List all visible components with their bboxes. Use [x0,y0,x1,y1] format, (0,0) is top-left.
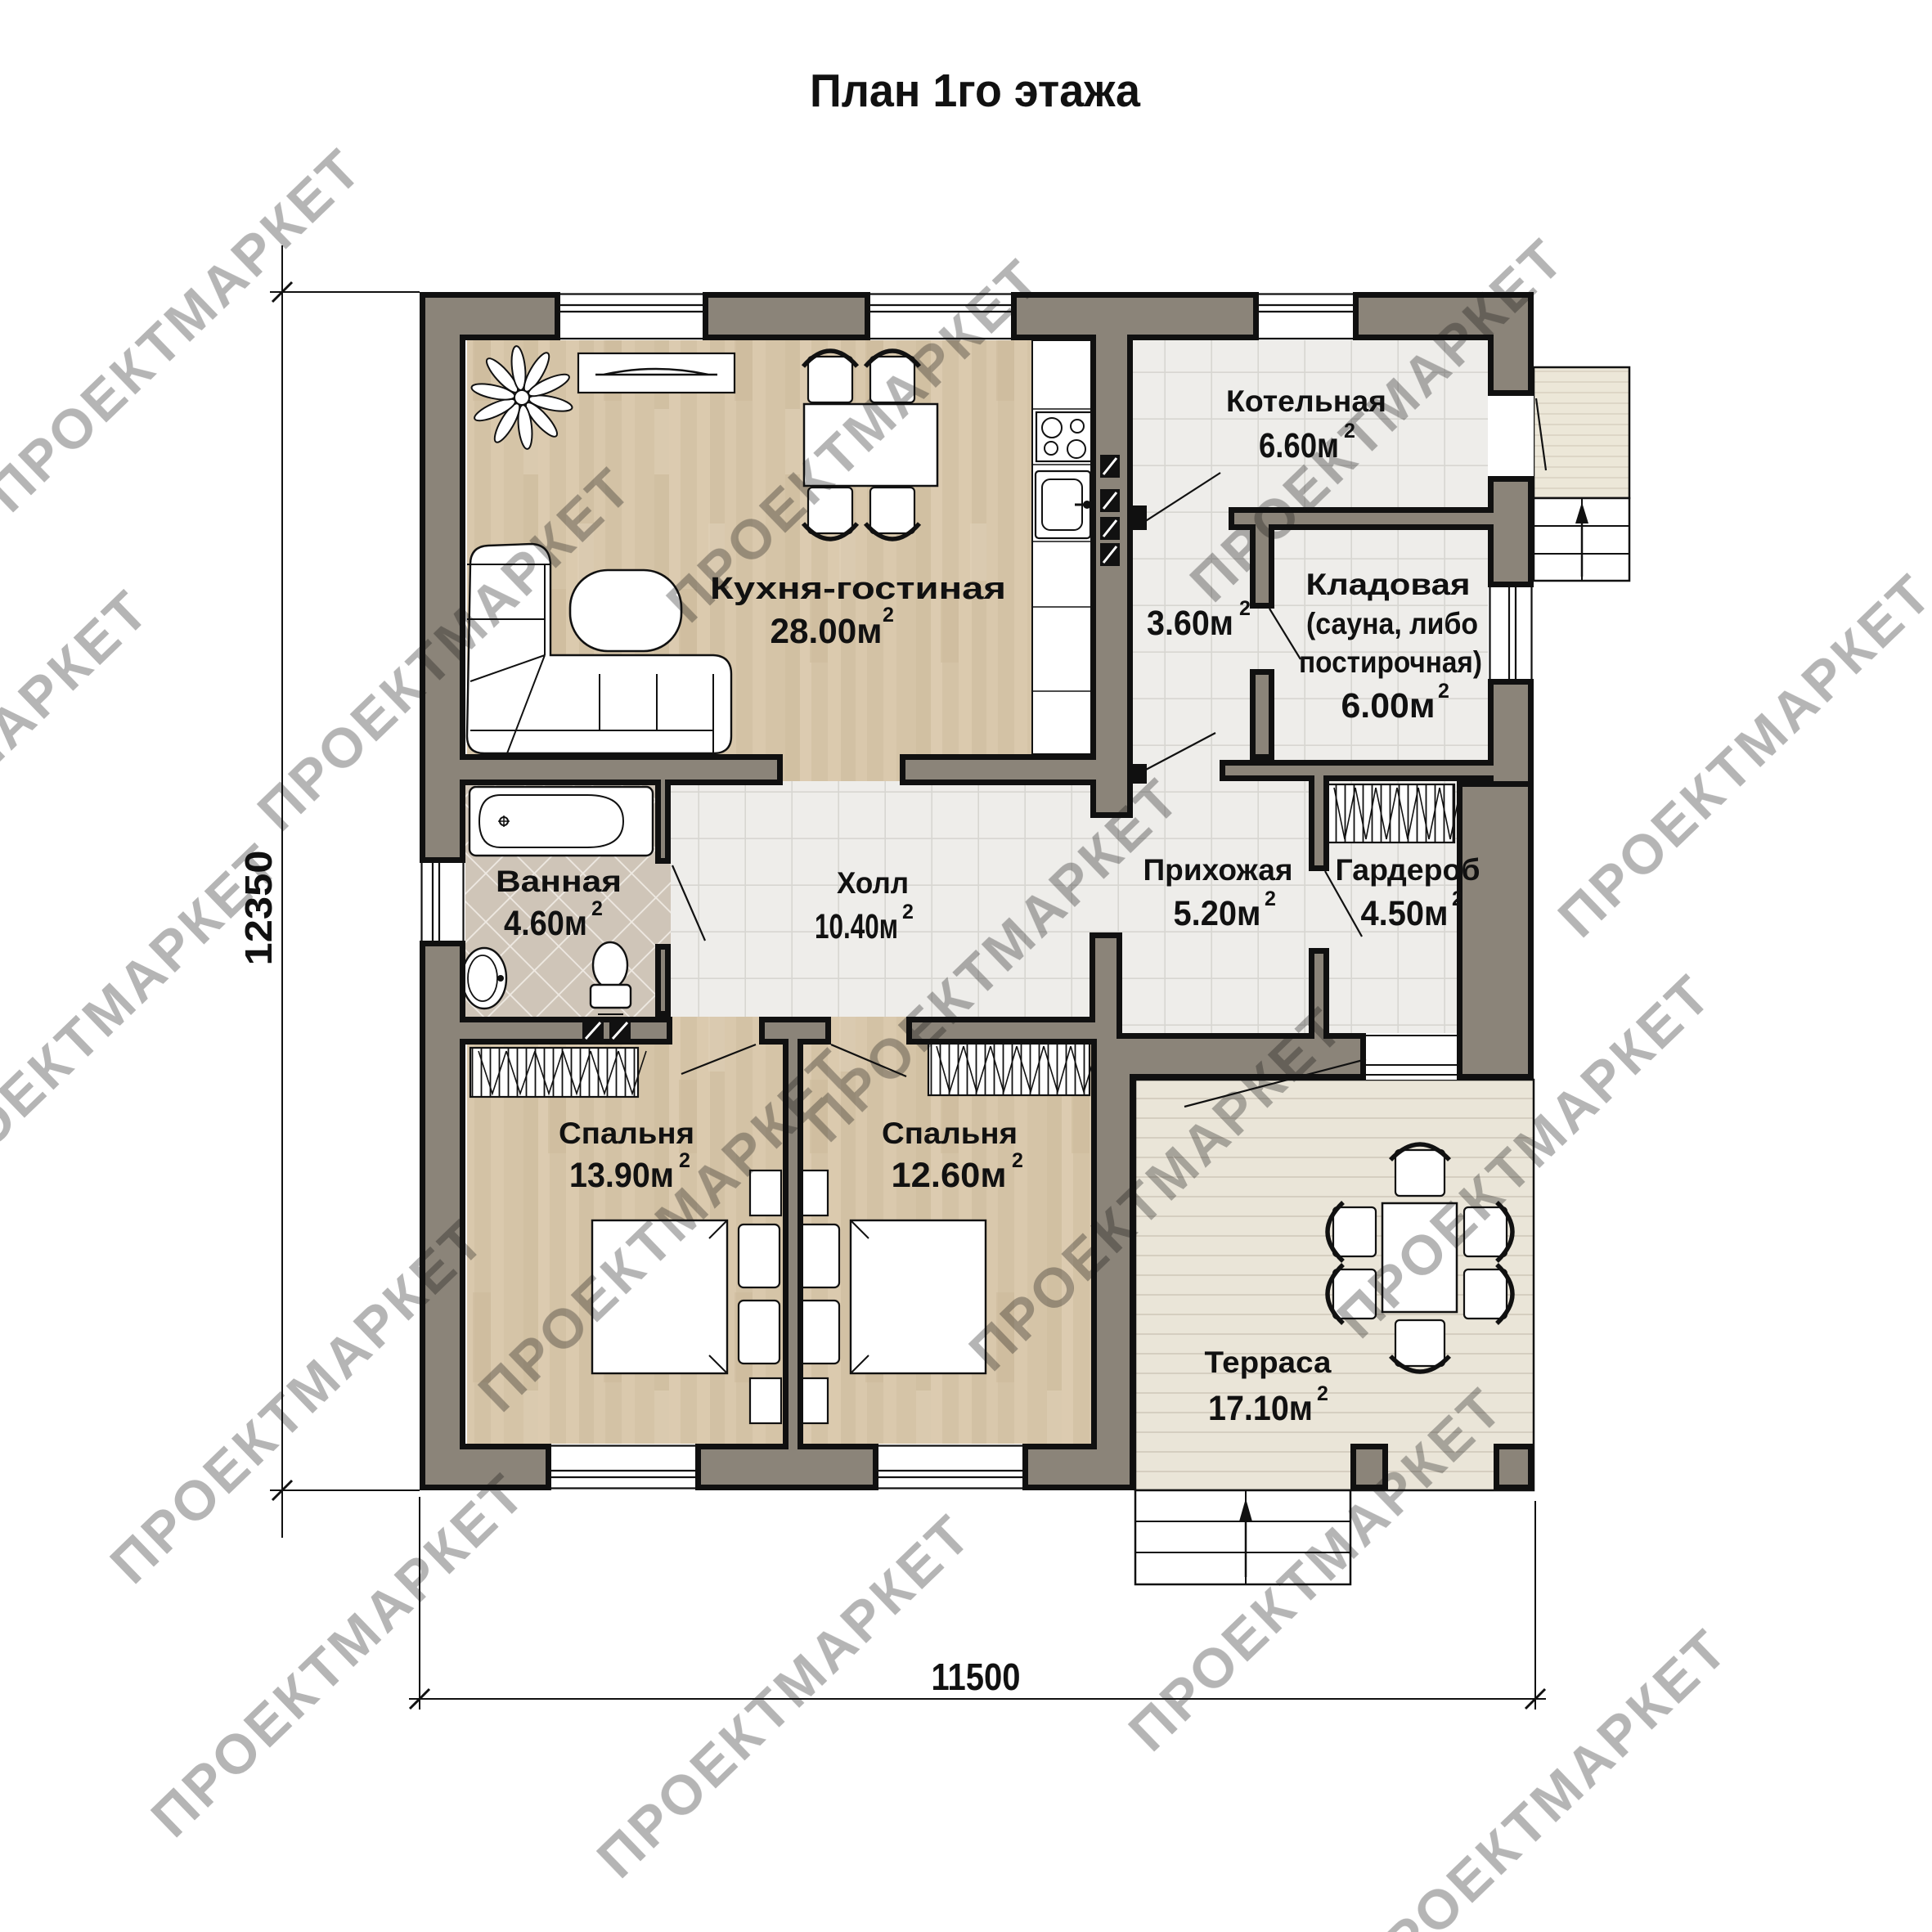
svg-text:2: 2 [1438,680,1449,703]
svg-text:2: 2 [883,604,894,627]
svg-text:17.10м: 17.10м [1208,1389,1313,1428]
svg-text:План 1го этажа: План 1го этажа [810,65,1141,117]
svg-text:постирочная): постирочная) [1299,645,1482,679]
svg-text:4.60м: 4.60м [504,904,587,943]
svg-text:4.50м: 4.50м [1361,894,1449,933]
svg-text:Терраса: Терраса [1205,1346,1332,1379]
svg-text:13.90м: 13.90м [569,1156,674,1195]
svg-text:(сауна, либо: (сауна, либо [1306,607,1478,640]
svg-text:Ванная: Ванная [496,865,622,898]
svg-text:Спальня: Спальня [882,1117,1018,1150]
svg-text:5.20м: 5.20м [1174,894,1261,933]
svg-text:Кладовая: Кладовая [1306,568,1471,601]
svg-text:12.60м: 12.60м [892,1156,1007,1195]
svg-text:28.00м: 28.00м [771,612,883,651]
svg-text:2: 2 [1265,887,1276,910]
svg-text:2: 2 [1239,597,1251,620]
svg-text:10.40м: 10.40м [815,907,898,946]
svg-text:Гардероб: Гардероб [1336,853,1480,887]
svg-text:2: 2 [1317,1382,1328,1405]
svg-text:Прихожая: Прихожая [1143,853,1293,887]
svg-text:11500: 11500 [932,1656,1021,1698]
svg-text:2: 2 [1012,1149,1023,1172]
svg-text:2: 2 [1452,887,1463,910]
svg-text:Холл: Холл [837,866,909,900]
svg-text:2: 2 [902,901,914,923]
svg-text:2: 2 [591,897,603,920]
svg-text:Спальня: Спальня [559,1117,694,1150]
svg-text:6.00м: 6.00м [1341,686,1436,726]
